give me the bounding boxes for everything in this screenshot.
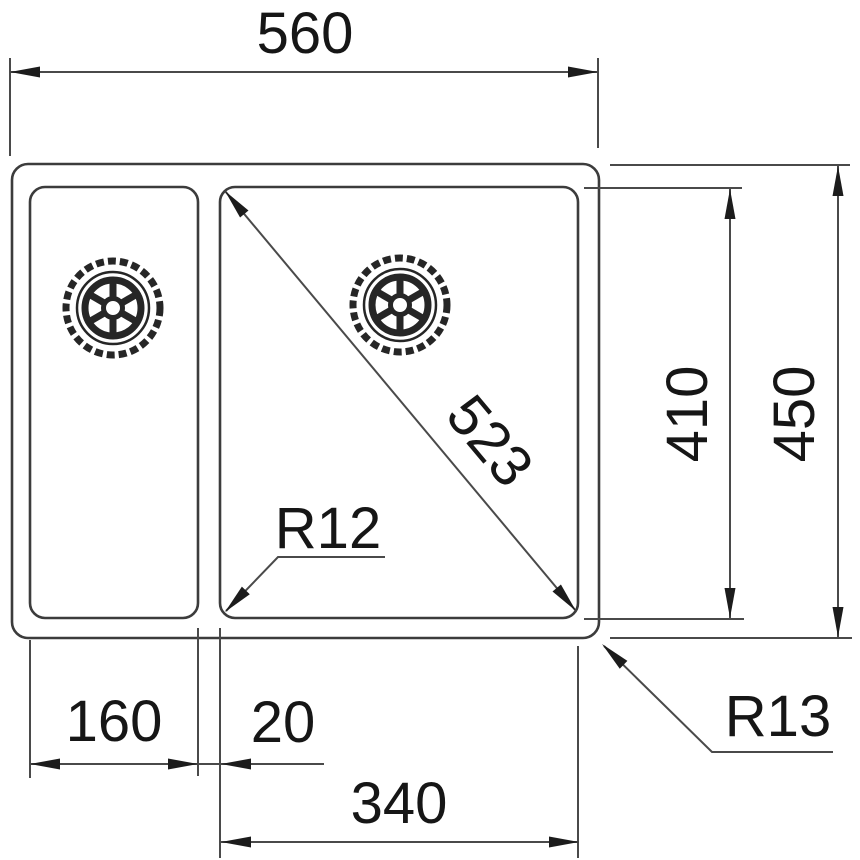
large-bowl-width-label: 340 [351, 771, 448, 836]
technical-drawing-page: 560 523 410 [0, 0, 860, 860]
sink-body [12, 164, 599, 638]
bowl-depth-label: 410 [655, 366, 720, 463]
divider-gap-label: 20 [251, 690, 316, 755]
small-bowl-outline [30, 187, 198, 618]
small-bowl-drain-icon [66, 261, 160, 355]
outer-rim-outline [12, 164, 599, 638]
dim-bowl-depth: 410 [584, 188, 744, 619]
bowl-diagonal-label: 523 [434, 383, 546, 499]
small-bowl-width-label: 160 [66, 689, 163, 754]
large-bowl-outline [220, 187, 578, 618]
sink-dimension-drawing: 560 523 410 [0, 0, 860, 860]
dim-divider-gap: 20 [198, 628, 324, 858]
bowl-radius-label: R12 [275, 496, 381, 561]
overall-depth-label: 450 [762, 366, 827, 463]
dim-small-bowl-width: 160 [30, 628, 198, 778]
outer-radius-label: R13 [725, 684, 831, 749]
callout-outer-radius: R13 [598, 640, 833, 752]
callout-bowl-radius: R12 [221, 496, 385, 616]
large-bowl-drain-icon [353, 258, 447, 352]
overall-width-label: 560 [257, 1, 354, 66]
dim-overall-width: 560 [10, 1, 598, 156]
